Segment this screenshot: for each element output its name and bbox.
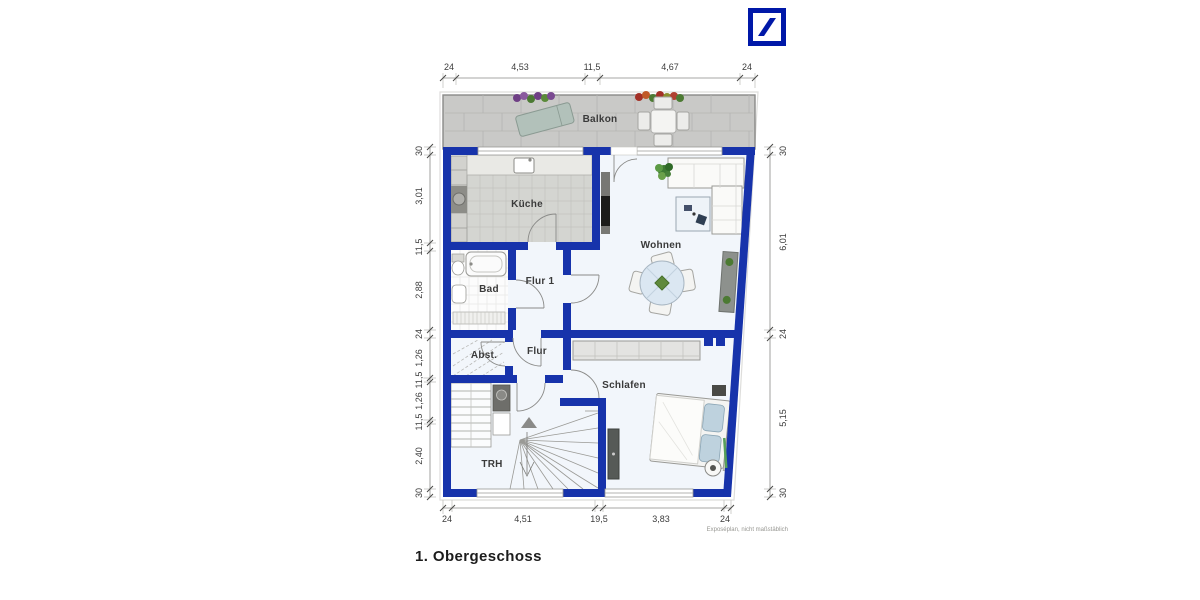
dim-left-8: 11,5: [413, 409, 425, 435]
dim-left-9: 2,40: [413, 443, 425, 469]
dim-bottom-3: 3,83: [641, 513, 681, 525]
dim-top-3: 4,67: [650, 61, 690, 73]
page-title: 1. Obergeschoss: [415, 548, 542, 565]
dim-left-3: 2,88: [413, 277, 425, 303]
room-label-schlafen: Schlafen: [589, 380, 659, 392]
room-label-trh: TRH: [457, 459, 527, 471]
dim-bottom-1: 4,51: [503, 513, 543, 525]
dim-top-1: 4,53: [500, 61, 540, 73]
balcony-door-opening: [611, 147, 637, 155]
chimney: [704, 338, 713, 346]
dim-right-3: 5,15: [777, 405, 789, 431]
room-label-balkon: Balkon: [565, 114, 635, 126]
room-label-kueche: Küche: [492, 199, 562, 211]
dim-left-4: 24: [413, 321, 425, 347]
dim-left-2: 11,5: [413, 234, 425, 260]
chimney: [716, 338, 725, 346]
floorplan-page: Balkon Küche Wohnen Bad Flur 1 Abst. Flu…: [0, 0, 1200, 600]
dim-bottom-4: 24: [705, 513, 745, 525]
dim-bottom-0: 24: [427, 513, 467, 525]
floor-plan-drawing: [0, 0, 1200, 600]
disclaimer-note: Exposéplan, nicht maßstäblich: [668, 527, 788, 533]
dim-bottom-2: 19,5: [579, 513, 619, 525]
dim-left-0: 30: [413, 138, 425, 164]
dim-left-1: 3,01: [413, 183, 425, 209]
bed: [649, 391, 735, 471]
wardrobe: [573, 341, 700, 360]
room-label-wohnen: Wohnen: [626, 240, 696, 252]
room-label-flur: Flur: [502, 346, 572, 358]
dim-top-0: 24: [429, 61, 469, 73]
dim-left-10: 30: [413, 480, 425, 506]
dim-right-1: 6,01: [777, 229, 789, 255]
dim-right-4: 30: [777, 480, 789, 506]
deutsche-bank-logo-icon: [748, 8, 786, 46]
dim-right-0: 30: [777, 138, 789, 164]
dim-top-4: 24: [727, 61, 767, 73]
nightstand: [712, 385, 726, 396]
deutsche-bank-logo: [748, 8, 786, 46]
dim-top-2: 11,5: [572, 61, 612, 73]
room-label-flur1: Flur 1: [505, 276, 575, 288]
dim-right-2: 24: [777, 321, 789, 347]
